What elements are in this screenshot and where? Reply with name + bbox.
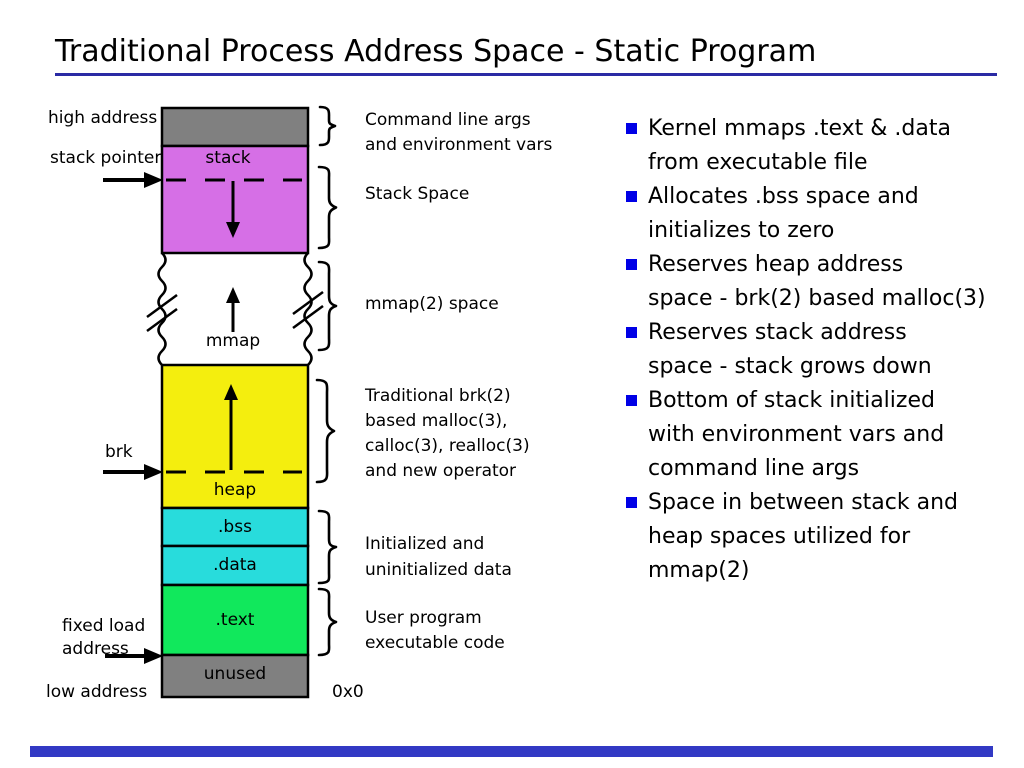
bullet-text-line: space - stack grows down (648, 350, 1008, 384)
bullet-text-line: mmap(2) (648, 554, 1008, 588)
bullet-text-line: Reserves heap address (648, 248, 1008, 282)
bullet-text-line: heap spaces utilized for (648, 520, 1008, 554)
block-label-bss: .bss (218, 517, 252, 537)
label-brk: brk (105, 442, 133, 462)
annotation-data-1: Initialized and (365, 534, 484, 554)
bullet-text-line: initializes to zero (648, 214, 1008, 248)
bullet-text-line: command line args (648, 452, 1008, 486)
brace-stack (319, 167, 336, 248)
annotation-heap-2: based malloc(3), (365, 411, 507, 431)
annotation-argv-2: and environment vars (365, 135, 553, 155)
bullet-item: Bottom of stack initialized with environ… (626, 384, 1008, 486)
bullet-text-line: Reserves stack address (648, 316, 1008, 350)
block-label-mmap: mmap (206, 331, 260, 351)
label-fixed-load-2: address (62, 639, 129, 659)
block-label-stack: stack (205, 148, 250, 168)
bullet-square-icon (626, 191, 637, 202)
bullet-square-icon (626, 327, 637, 338)
block-label-heap: heap (214, 480, 256, 500)
brace-heap (317, 380, 334, 482)
bullet-list: Kernel mmaps .text & .data from executab… (626, 112, 1008, 588)
annotation-text-1: User program (365, 608, 482, 628)
bullet-item: Reserves stack address space - stack gro… (626, 316, 1008, 384)
label-low-address: low address (46, 682, 147, 702)
memory-diagram: stack mmap heap .bss .data .text unused … (0, 0, 620, 720)
bullet-square-icon (626, 123, 637, 134)
bullet-item: Space in between stack and heap spaces u… (626, 486, 1008, 588)
annotation-stack-space: Stack Space (365, 184, 469, 204)
annotation-heap-1: Traditional brk(2) (364, 386, 511, 406)
bullet-text-line: Space in between stack and (648, 486, 1008, 520)
block-label-data: .data (213, 555, 257, 575)
annotation-zero-address: 0x0 (332, 682, 364, 702)
label-fixed-load-1: fixed load (62, 616, 145, 636)
bullet-item: Reserves heap address space - brk(2) bas… (626, 248, 1008, 316)
bullet-text-line: Allocates .bss space and (648, 180, 1008, 214)
bullet-square-icon (626, 497, 637, 508)
brk-arrow (103, 464, 163, 480)
annotation-data-2: uninitialized data (365, 560, 512, 580)
braces (317, 107, 336, 655)
block-label-text: .text (216, 610, 255, 630)
label-high-address: high address (48, 108, 157, 128)
annotation-heap-4: and new operator (365, 461, 516, 481)
bullet-item: Kernel mmaps .text & .data from executab… (626, 112, 1008, 180)
block-label-unused: unused (204, 664, 266, 684)
bullet-item: Allocates .bss space and initializes to … (626, 180, 1008, 248)
bullet-text-line: Kernel mmaps .text & .data (648, 112, 1008, 146)
annotation-mmap-space: mmap(2) space (365, 294, 499, 314)
annotation-heap-3: calloc(3), realloc(3) (365, 436, 530, 456)
bullet-square-icon (626, 259, 637, 270)
annotation-argv-1: Command line args (365, 110, 531, 130)
bullet-text-line: Bottom of stack initialized (648, 384, 1008, 418)
bullet-text-line: space - brk(2) based malloc(3) (648, 282, 1008, 316)
block-argv-env (162, 108, 308, 146)
brace-bss-data (319, 511, 336, 583)
annotation-text-2: executable code (365, 633, 505, 653)
brace-argv (320, 107, 335, 145)
label-stack-pointer: stack pointer (50, 148, 161, 168)
brace-text (319, 589, 336, 655)
bullet-text-line: from executable file (648, 146, 1008, 180)
footer-bar (30, 746, 993, 757)
stack-pointer-arrow (103, 172, 163, 188)
bullet-text-line: with environment vars and (648, 418, 1008, 452)
bullet-square-icon (626, 395, 637, 406)
